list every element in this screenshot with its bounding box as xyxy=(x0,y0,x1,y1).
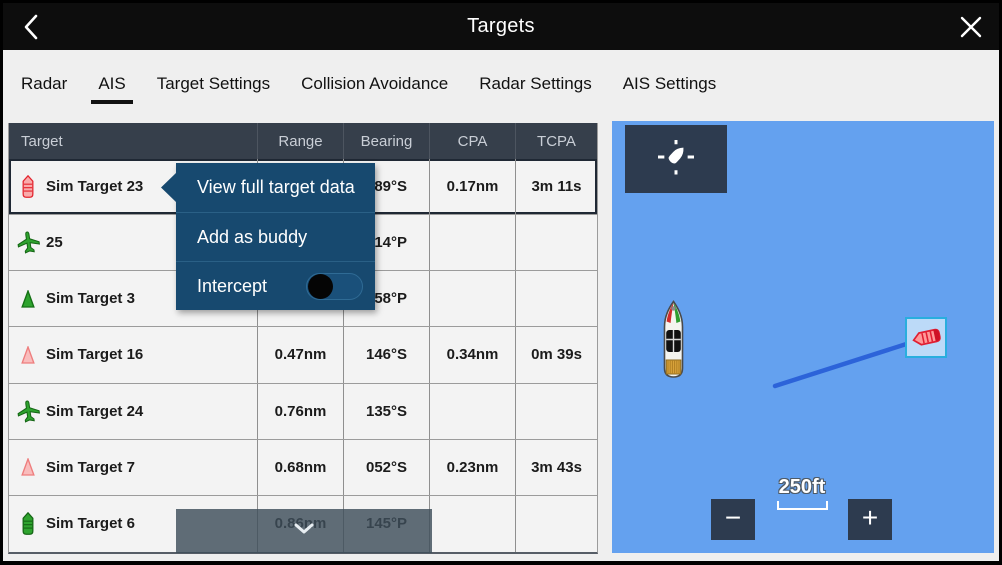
table-row[interactable]: Sim Target 16 0.47nm 146°S 0.34nm 0m 39s xyxy=(9,327,597,383)
vessel-locate-icon xyxy=(654,139,698,180)
title-bar: Targets xyxy=(3,3,999,50)
tab-radar[interactable]: Radar xyxy=(21,50,67,110)
content-area: Target Range Bearing CPA TCPA Sim Target… xyxy=(3,110,999,561)
cpa-value: 0.23nm xyxy=(430,440,516,495)
aircraft-green-icon xyxy=(16,231,40,254)
tab-collision-avoidance[interactable]: Collision Avoidance xyxy=(301,50,448,110)
tab-bar: Radar AIS Target Settings Collision Avoi… xyxy=(3,50,999,110)
triangle-green-icon xyxy=(16,290,40,308)
column-header-tcpa: TCPA xyxy=(516,123,597,159)
menu-item-view-full-target-data[interactable]: View full target data xyxy=(176,163,375,212)
selected-ais-target[interactable] xyxy=(905,317,947,358)
tab-ais[interactable]: AIS xyxy=(98,50,125,110)
table-row[interactable]: Sim Target 24 0.76nm 135°S xyxy=(9,384,597,440)
close-icon xyxy=(959,15,983,39)
range-value: 0.47nm xyxy=(258,327,344,382)
scroll-down-button[interactable] xyxy=(176,509,432,553)
back-chevron-icon xyxy=(21,12,41,42)
column-header-cpa: CPA xyxy=(430,123,516,159)
tab-ais-settings[interactable]: AIS Settings xyxy=(623,50,717,110)
tcpa-value xyxy=(516,496,597,552)
cpa-value: 0.17nm xyxy=(430,159,516,214)
target-name: Sim Target 3 xyxy=(46,290,135,307)
intercept-toggle[interactable] xyxy=(306,273,363,300)
cpa-value: 0.34nm xyxy=(430,327,516,382)
tcpa-value: 3m 43s xyxy=(516,440,597,495)
target-name: Sim Target 7 xyxy=(46,459,135,476)
intercept-label: Intercept xyxy=(197,276,267,297)
ais-target-red-icon xyxy=(910,326,942,349)
target-name: Sim Target 16 xyxy=(46,346,143,363)
tcpa-value: 3m 11s xyxy=(516,159,597,214)
vessel-red-icon xyxy=(16,175,40,198)
own-vessel-icon xyxy=(657,300,690,380)
target-name: Sim Target 23 xyxy=(46,178,143,195)
tcpa-value: 0m 39s xyxy=(516,327,597,382)
column-header-bearing: Bearing xyxy=(344,123,430,159)
menu-item-intercept[interactable]: Intercept xyxy=(176,261,375,310)
plus-icon: + xyxy=(862,504,878,535)
page-title: Targets xyxy=(467,15,535,38)
cpa-value xyxy=(430,496,516,552)
tcpa-value xyxy=(516,271,597,326)
triangle-pink-icon xyxy=(16,346,40,364)
back-button[interactable] xyxy=(3,3,59,50)
map-scale-label: 250ft xyxy=(762,476,842,499)
cpa-value xyxy=(430,215,516,270)
tcpa-value xyxy=(516,384,597,439)
zoom-out-button[interactable]: − xyxy=(711,499,755,540)
target-name: 25 xyxy=(46,234,63,251)
column-header-target: Target xyxy=(9,123,258,159)
bearing-value: 146°S xyxy=(344,327,430,382)
zoom-in-button[interactable]: + xyxy=(848,499,892,540)
cpa-value xyxy=(430,271,516,326)
target-name: Sim Target 6 xyxy=(46,515,135,532)
triangle-pink-icon xyxy=(16,458,40,476)
target-name: Sim Target 24 xyxy=(46,403,143,420)
menu-item-add-as-buddy[interactable]: Add as buddy xyxy=(176,212,375,261)
scale-bracket xyxy=(777,501,828,510)
tcpa-value xyxy=(516,215,597,270)
table-row[interactable]: Sim Target 7 0.68nm 052°S 0.23nm 3m 43s xyxy=(9,440,597,496)
tab-target-settings[interactable]: Target Settings xyxy=(157,50,270,110)
context-menu: View full target data Add as buddy Inter… xyxy=(176,163,375,310)
close-button[interactable] xyxy=(943,3,999,50)
column-header-range: Range xyxy=(258,123,344,159)
cpa-value xyxy=(430,384,516,439)
chevron-down-icon xyxy=(293,522,315,540)
table-header: Target Range Bearing CPA TCPA xyxy=(9,123,597,159)
tab-radar-settings[interactable]: Radar Settings xyxy=(479,50,591,110)
minus-icon: − xyxy=(725,504,741,535)
bearing-value: 052°S xyxy=(344,440,430,495)
locate-vessel-button[interactable] xyxy=(625,125,727,193)
range-value: 0.68nm xyxy=(258,440,344,495)
toggle-knob xyxy=(308,274,333,299)
aircraft-green-icon xyxy=(16,400,40,423)
bearing-value: 135°S xyxy=(344,384,430,439)
vessel-green-icon xyxy=(16,512,40,535)
range-value: 0.76nm xyxy=(258,384,344,439)
map-pane[interactable]: 250ft − + xyxy=(612,121,994,553)
